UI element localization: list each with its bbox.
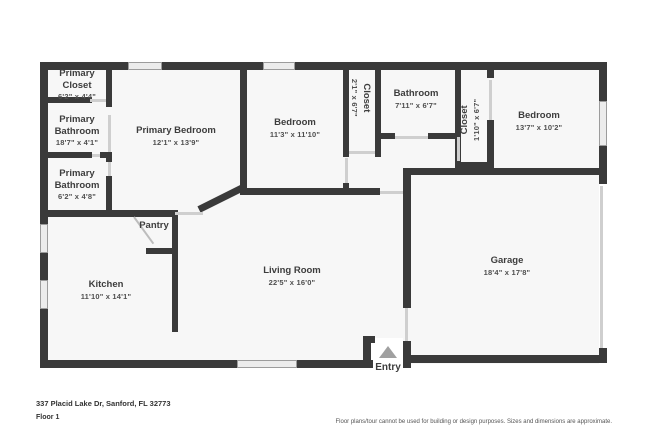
window bbox=[128, 62, 162, 70]
wall bbox=[343, 183, 349, 195]
room-label-bedroom-3: Bedroom 13'7" x 10'2" bbox=[499, 110, 579, 132]
door-opening bbox=[92, 154, 100, 157]
room-label-primary-bathroom-2: Primary Bathroom 6'2" x 4'8" bbox=[42, 168, 112, 201]
entry-arrow-icon bbox=[379, 346, 397, 358]
window bbox=[599, 101, 607, 146]
disclaimer-text: Floor plans/tour cannot be used for buil… bbox=[336, 419, 613, 425]
wall bbox=[403, 355, 607, 363]
room-label-garage: Garage 18'4" x 17'8" bbox=[467, 255, 547, 277]
wall bbox=[487, 62, 494, 78]
room-label-kitchen: Kitchen 11'10" x 14'1" bbox=[66, 279, 146, 301]
address-text: 337 Placid Lake Dr, Sanford, FL 32773 bbox=[36, 399, 171, 408]
door-opening bbox=[175, 212, 203, 215]
wall bbox=[106, 152, 112, 162]
garage-door bbox=[600, 186, 603, 348]
wall bbox=[40, 360, 373, 368]
room-label-closet-bedroom: Closet 1'10" x 6'7" bbox=[459, 85, 481, 155]
wall bbox=[599, 348, 607, 363]
floor-number-text: Floor 1 bbox=[36, 414, 59, 421]
wall bbox=[146, 248, 178, 254]
entry-label: Entry bbox=[365, 362, 411, 373]
wall bbox=[240, 188, 380, 195]
window bbox=[263, 62, 295, 70]
window bbox=[237, 360, 297, 368]
window bbox=[40, 280, 48, 309]
door-opening bbox=[405, 308, 408, 341]
room-label-living-room: Living Room 22'5" x 16'0" bbox=[242, 265, 342, 287]
wall bbox=[403, 168, 607, 175]
room-label-bedroom-2: Bedroom 11'3" x 11'10" bbox=[255, 117, 335, 139]
door-opening bbox=[380, 191, 403, 194]
wall bbox=[40, 152, 92, 158]
wall bbox=[40, 210, 175, 217]
door-opening bbox=[489, 80, 492, 120]
door-opening bbox=[349, 151, 375, 154]
floor-plan-page: Primary Closet 6'2" x 4'4" Primary Bathr… bbox=[0, 0, 650, 434]
wall bbox=[487, 120, 494, 168]
room-label-primary-closet: Primary Closet 6'2" x 4'4" bbox=[46, 68, 108, 101]
room-label-bathroom: Bathroom 7'11" x 6'7" bbox=[376, 88, 456, 110]
room-label-primary-bathroom-1: Primary Bathroom 18'7" x 4'1" bbox=[42, 114, 112, 147]
wall bbox=[240, 62, 247, 195]
wall bbox=[403, 168, 411, 308]
room-label-closet-hall: Closet 2'1" x 6'7" bbox=[350, 63, 372, 133]
wall bbox=[381, 133, 395, 139]
window bbox=[40, 224, 48, 253]
door-opening bbox=[345, 158, 348, 183]
wall bbox=[40, 62, 607, 70]
room-label-primary-bedroom: Primary Bedroom 12'1" x 13'9" bbox=[126, 125, 226, 147]
door-opening bbox=[395, 136, 428, 139]
room-label-pantry: Pantry bbox=[129, 220, 179, 232]
wall bbox=[343, 62, 349, 157]
